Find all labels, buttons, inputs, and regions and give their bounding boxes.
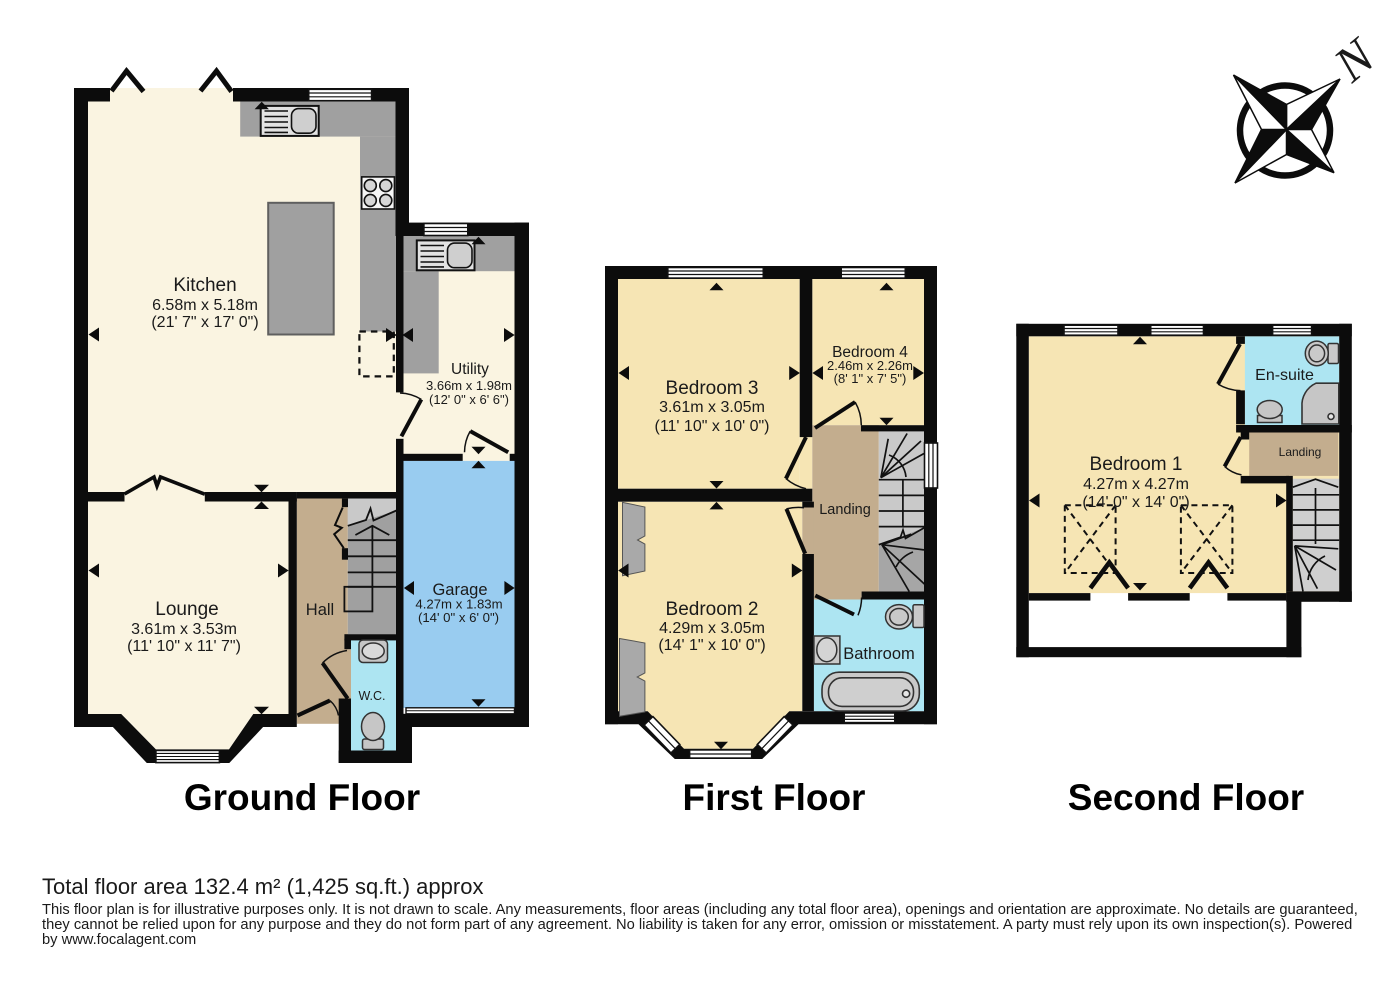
svg-text:W.C.: W.C. [358, 689, 385, 703]
svg-text:Second Floor: Second Floor [1068, 777, 1304, 818]
svg-text:Landing: Landing [819, 502, 871, 518]
svg-text:First Floor: First Floor [683, 777, 866, 818]
svg-text:Hall: Hall [306, 601, 334, 619]
svg-text:by www.focalagent.com: by www.focalagent.com [42, 932, 196, 948]
svg-text:Bedroom 3: Bedroom 3 [666, 378, 759, 399]
svg-text:4.29m x 3.05m: 4.29m x 3.05m [659, 620, 765, 637]
svg-text:Utility: Utility [451, 361, 489, 378]
svg-text:En-suite: En-suite [1255, 367, 1314, 384]
svg-text:Bedroom 2: Bedroom 2 [666, 599, 759, 620]
svg-text:Bathroom: Bathroom [843, 645, 915, 663]
svg-text:(14' 0" x 6' 0"): (14' 0" x 6' 0") [418, 610, 499, 625]
svg-text:Kitchen: Kitchen [173, 275, 236, 296]
svg-text:This floor plan is for illustr: This floor plan is for illustrative purp… [42, 902, 1358, 918]
svg-text:(14' 1" x 10' 0"): (14' 1" x 10' 0") [658, 637, 765, 654]
svg-text:(11' 10" x 10' 0"): (11' 10" x 10' 0") [654, 418, 769, 435]
svg-text:Lounge: Lounge [155, 599, 218, 620]
svg-text:Bedroom 1: Bedroom 1 [1090, 454, 1183, 475]
svg-text:they cannot be relied upon for: they cannot be relied upon for any purpo… [42, 917, 1352, 933]
svg-text:3.61m x 3.53m: 3.61m x 3.53m [131, 621, 237, 638]
svg-text:6.58m x 5.18m: 6.58m x 5.18m [152, 297, 258, 314]
svg-text:(12' 0" x 6' 6"): (12' 0" x 6' 6") [429, 392, 509, 407]
svg-text:Landing: Landing [1279, 445, 1322, 459]
svg-text:(14' 0" x 14' 0"): (14' 0" x 14' 0") [1082, 494, 1189, 511]
svg-text:4.27m x 4.27m: 4.27m x 4.27m [1083, 476, 1189, 493]
svg-text:3.61m x 3.05m: 3.61m x 3.05m [659, 399, 765, 416]
svg-text:3.66m x 1.98m: 3.66m x 1.98m [426, 378, 512, 393]
svg-text:(21' 7" x 17' 0"): (21' 7" x 17' 0") [151, 314, 258, 331]
svg-text:(11' 10" x 11' 7"): (11' 10" x 11' 7") [127, 638, 241, 655]
svg-text:Ground Floor: Ground Floor [184, 777, 420, 818]
svg-text:(8' 1" x 7' 5"): (8' 1" x 7' 5") [834, 371, 907, 386]
svg-text:Total floor area 132.4 m² (1,4: Total floor area 132.4 m² (1,425 sq.ft.)… [42, 874, 483, 899]
